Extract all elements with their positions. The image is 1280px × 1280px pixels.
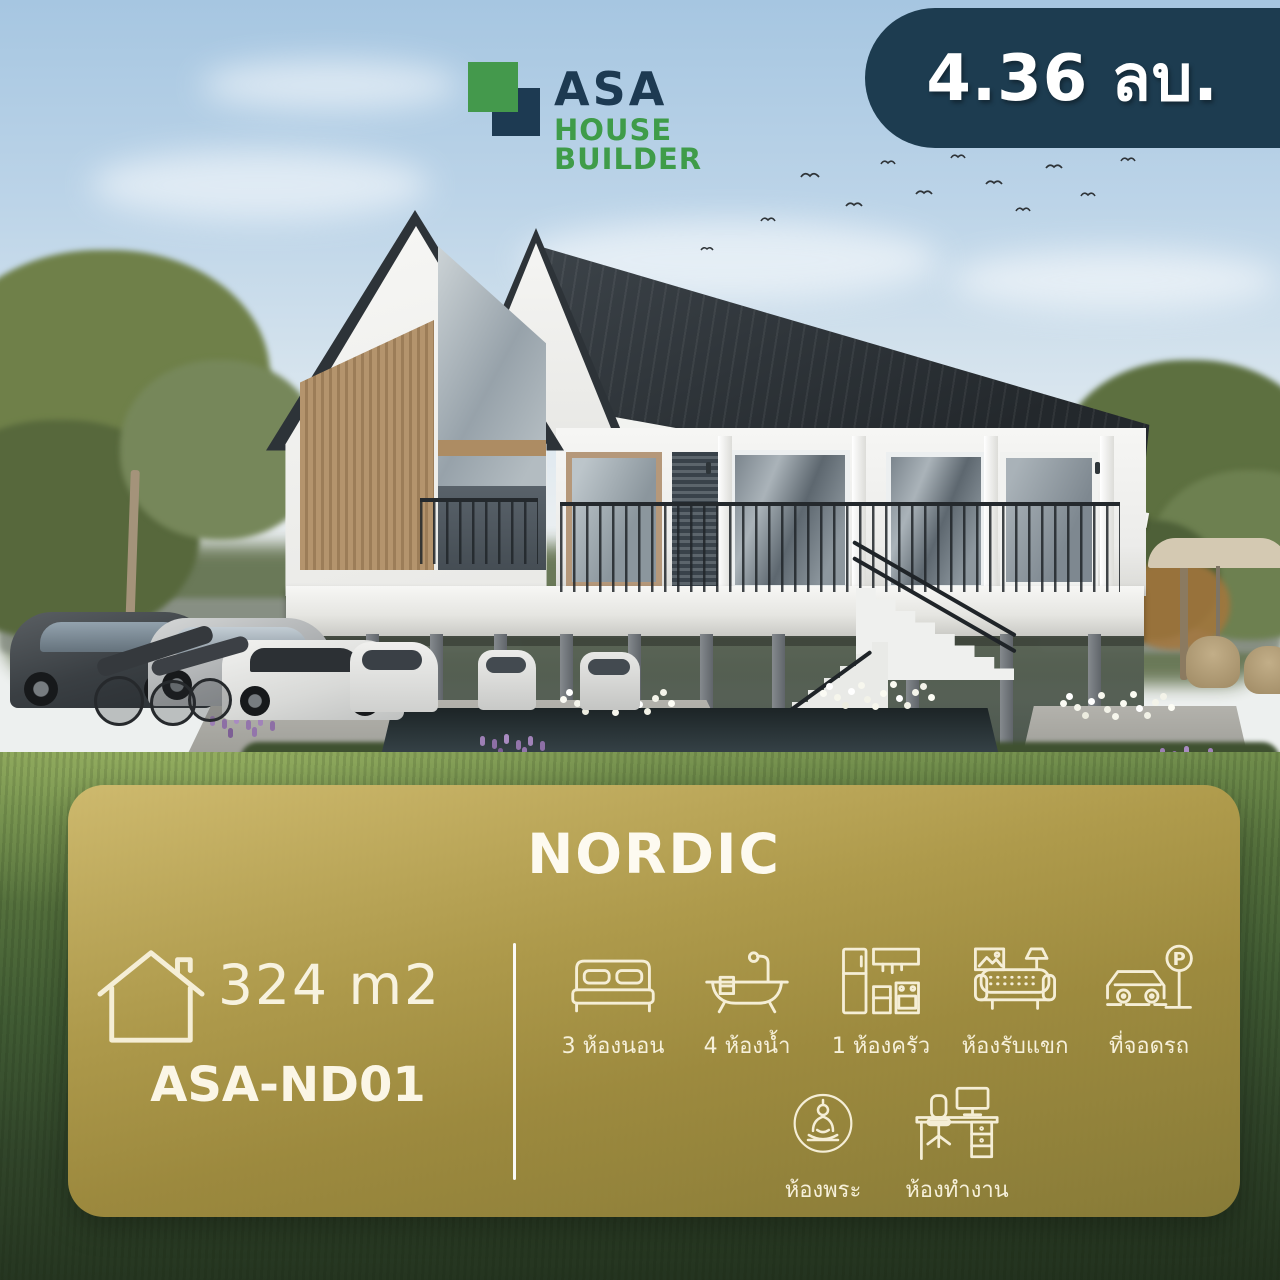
bird-icon [1045, 162, 1065, 172]
balcony-railing [560, 502, 1120, 592]
feature-label: ห้องรับแขก [962, 1028, 1069, 1063]
feature-label: ห้องทำงาน [905, 1172, 1008, 1207]
bird-icon [760, 215, 780, 225]
brand-name: ASA [554, 66, 667, 112]
bird-icon [880, 158, 900, 168]
wicker-chair [1244, 646, 1280, 694]
wall-lamp [706, 462, 711, 474]
poster-canvas: ASA HOUSE BUILDER 4.36 ลบ. NORDIC 324 m2… [0, 0, 1280, 1280]
feature-living-room: ห้องรับแขก [948, 937, 1082, 1063]
white-flowers [560, 696, 567, 703]
car-white-under-house [580, 652, 640, 710]
car-white-under-house [478, 650, 536, 710]
cloud [200, 60, 460, 110]
feature-label: 3 ห้องนอน [562, 1028, 665, 1063]
white-flowers [1060, 700, 1067, 707]
brand-tagline: HOUSE BUILDER [554, 116, 828, 174]
wall-lamp [1095, 462, 1100, 474]
buddha-icon [783, 1081, 863, 1165]
model-code: ASA-ND01 [88, 1057, 488, 1113]
white-flowers [820, 690, 827, 697]
desk-icon [909, 1081, 1005, 1165]
bird-icon [915, 188, 935, 198]
feature-kitchen: 1 ห้องครัว [814, 937, 948, 1063]
feature-parking: P ที่จอดรถ [1082, 937, 1216, 1063]
feature-bathrooms: 4 ห้องน้ำ [680, 937, 814, 1063]
car-wheel [24, 672, 58, 706]
area-value: 324 m2 [218, 953, 441, 1017]
brand-logo: ASA HOUSE BUILDER [468, 62, 828, 152]
feature-work-room: ห้องทำงาน [890, 1081, 1024, 1207]
bird-icon [1080, 190, 1100, 200]
kitchen-icon [836, 937, 926, 1021]
bird-icon [985, 178, 1005, 188]
features-row-1: 3 ห้องนอน 4 ห้องน้ำ [546, 937, 1216, 1063]
feature-label: ที่จอดรถ [1109, 1028, 1189, 1063]
wicker-chair [1186, 636, 1240, 688]
feature-label: 4 ห้องน้ำ [704, 1028, 791, 1063]
feature-label: ห้องพระ [785, 1172, 862, 1207]
cloud [950, 250, 1280, 310]
bird-icon [1015, 205, 1035, 215]
cloud [90, 150, 430, 220]
sofa-icon [966, 937, 1064, 1021]
house-icon [92, 943, 210, 1053]
bird-icon [950, 152, 970, 162]
model-title: NORDIC [68, 822, 1240, 886]
aframe-wood-band [438, 440, 546, 456]
car-window [588, 659, 630, 675]
motorcycle-wheel [188, 678, 232, 722]
car-white-under-house [350, 642, 438, 712]
patio-umbrella [1148, 538, 1280, 568]
feature-prayer-room: ห้องพระ [756, 1081, 890, 1207]
balcony-floor [286, 586, 1144, 638]
bed-icon [567, 937, 659, 1021]
aframe-balcony-railing [420, 498, 538, 564]
bird-icon [845, 200, 865, 210]
price-badge: 4.36 ลบ. [865, 8, 1280, 148]
bathtub-icon [701, 937, 793, 1021]
bird-icon [1120, 155, 1140, 165]
features-row-2: ห้องพระ [756, 1081, 1024, 1207]
umbrella-pole [1216, 566, 1220, 642]
car-window [486, 657, 526, 673]
svg-text:P: P [1173, 949, 1186, 970]
feature-label: 1 ห้องครัว [832, 1028, 930, 1063]
logo-green-square [468, 62, 518, 112]
spec-card: NORDIC 324 m2 ASA-ND01 [68, 785, 1240, 1217]
car-wheel [240, 686, 270, 716]
price-text: 4.36 ลบ. [926, 27, 1218, 129]
bird-icon [700, 245, 720, 255]
feature-bedrooms: 3 ห้องนอน [546, 937, 680, 1063]
parking-icon: P [1100, 937, 1198, 1021]
car-window [362, 650, 422, 670]
motorcycle-wheel [94, 676, 144, 726]
purple-flowers [480, 736, 485, 746]
vertical-divider [513, 943, 516, 1180]
car-window [250, 648, 360, 672]
